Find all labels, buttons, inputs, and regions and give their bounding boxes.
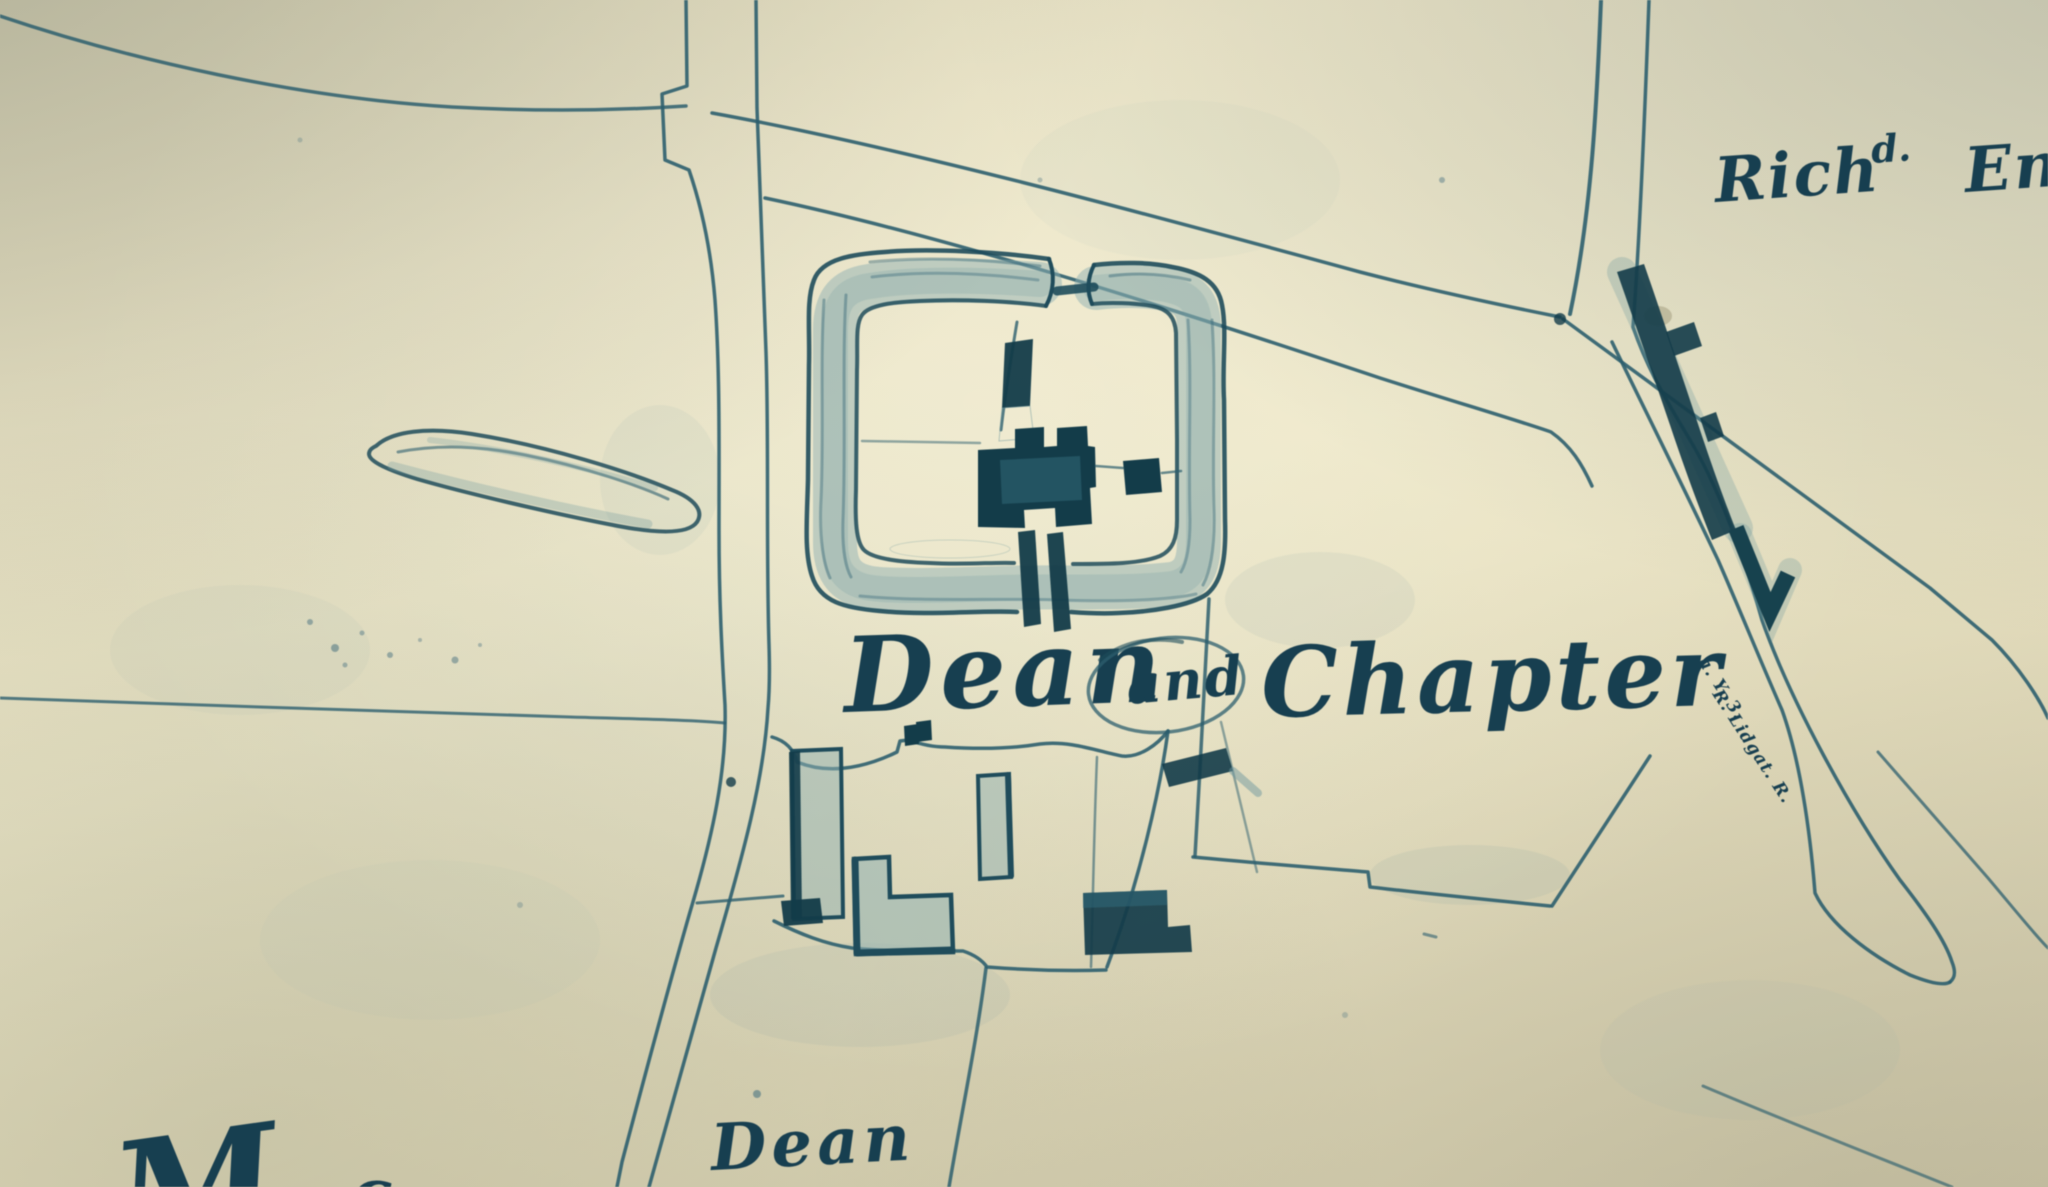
label-chapter: Chapter [1260,614,1729,740]
east-outbuilding [1123,458,1162,495]
label-and: and [1124,643,1247,717]
map-drawing: Dean and Chapter Rich d. En Dean M c a. … [0,0,2048,1187]
label-owner-second: En [1960,127,2048,207]
label-dean: Dean [839,603,1169,737]
label-dean-bottom: Dean [707,1100,917,1186]
l-shaped-building [854,857,953,954]
north-building [1002,339,1033,408]
diagonal-building [1162,748,1233,787]
label-bottom-left-partial: M [98,1090,296,1187]
moat-buildings [862,322,1181,558]
road-annotation-line2: R. Lidgat. R. [1707,685,1796,807]
hamlet-buildings [781,720,1258,955]
label-bottom-left-partial2: c [350,1152,393,1187]
moat-entrance-gate [1057,287,1094,291]
label-owner-first: Rich [1710,133,1883,218]
roadside-building-strip [1617,264,1790,612]
manuscript-map-photo: Dean and Chapter Rich d. En Dean M c a. … [0,0,2048,1187]
label-owner-superscript: d. [1869,124,1912,172]
